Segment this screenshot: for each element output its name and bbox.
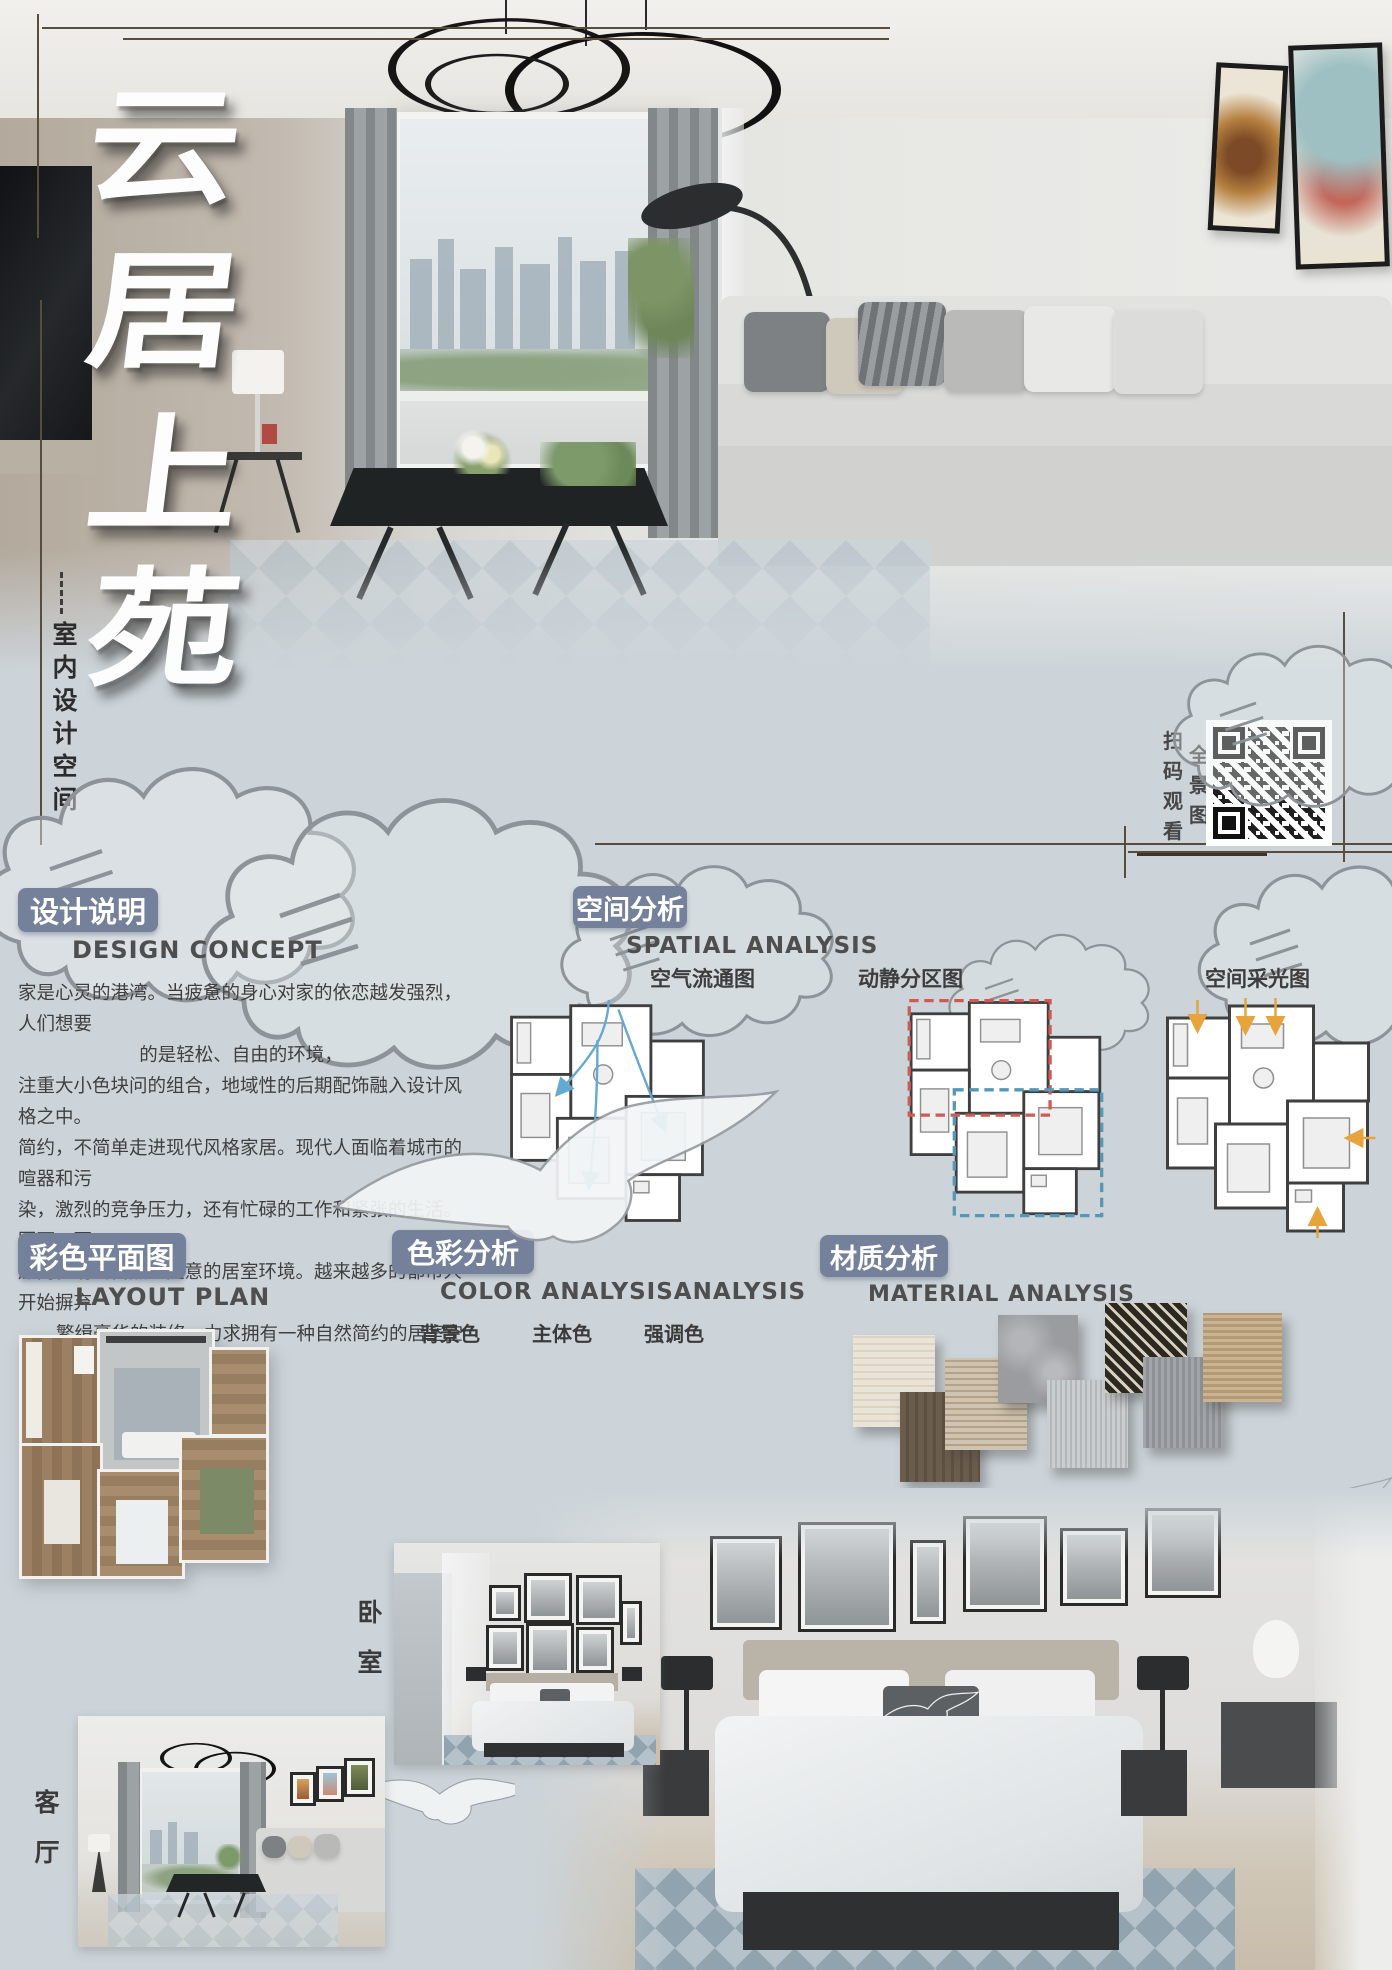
table-lamp-dark	[622, 1667, 642, 1681]
gallery-frame	[620, 1601, 642, 1645]
title-char: 云	[80, 84, 286, 212]
art-frame	[316, 1766, 344, 1802]
plan-bedroom-2	[182, 1438, 266, 1560]
building	[460, 269, 486, 359]
plan-dining	[22, 1446, 100, 1576]
diagram-label-airflow: 空气流通图	[650, 963, 755, 993]
bed-base	[484, 1743, 624, 1757]
swatch-label-accent: 强调色	[644, 1318, 704, 1347]
sofa	[718, 296, 1392, 566]
gallery-frame	[576, 1627, 614, 1673]
layout-plan-heading-en: LAYOUT PLAN	[75, 1283, 270, 1311]
white-lamp	[88, 1834, 110, 1852]
title-char: 苑	[80, 566, 286, 694]
building	[438, 239, 454, 354]
building	[580, 261, 606, 359]
pillow	[288, 1836, 312, 1858]
floor-plan-daylight	[1150, 998, 1385, 1243]
pillow-dark	[744, 312, 830, 392]
living-room-small-photo	[78, 1716, 385, 1947]
kitchen-counter	[26, 1342, 42, 1438]
pillow	[262, 1836, 286, 1858]
nightstand	[1121, 1750, 1187, 1816]
tv-wall	[106, 1336, 206, 1343]
dining-table	[44, 1480, 80, 1544]
pillow	[314, 1834, 340, 1858]
title-char: 居	[80, 248, 286, 376]
pillow-light	[1113, 310, 1203, 394]
green-bed-top-view	[200, 1468, 254, 1534]
coffee-table	[166, 1874, 266, 1892]
abstract-art-frame	[1288, 42, 1390, 269]
tv-console	[0, 440, 96, 474]
material-analysis-heading-en: MATERIAL ANALYSIS	[868, 1282, 1135, 1307]
hanging-plant	[540, 442, 636, 486]
bedroom-label: 卧室	[355, 1588, 385, 1688]
material-analysis-heading: 材质分析	[820, 1235, 948, 1277]
gallery-frame	[524, 1573, 572, 1623]
spatial-analysis-heading-en: SPATIAL ANALYSIS	[626, 933, 878, 959]
curtain-left	[345, 108, 397, 518]
abstract-art-frame	[1208, 62, 1289, 234]
pillow-gray	[944, 310, 1028, 392]
poster: 云 居 上 苑 室内设计空间 扫码观看 全景图 设计说明 DESIGN CONC…	[0, 0, 1392, 1970]
paragraph-line: 家是心灵的港湾。当疲惫的身心对家的依恋越发强烈，人们想要	[18, 978, 464, 1040]
design-concept-heading: 设计说明	[18, 888, 158, 932]
gallery-frame	[489, 1585, 521, 1621]
flower-vase	[452, 430, 512, 474]
geometric-rug	[108, 1894, 338, 1947]
gallery-frame	[576, 1575, 622, 1625]
floor-plan-zoning	[895, 995, 1115, 1225]
building	[410, 259, 432, 354]
art-frame	[344, 1758, 375, 1797]
bed-duvet	[715, 1716, 1143, 1912]
cloud-decoration	[1160, 640, 1392, 820]
color-analysis-heading-en: COLOR ANALYSISANALYSIS	[440, 1279, 806, 1305]
swatch-label-background: 背景色	[420, 1318, 480, 1347]
pillow-striped	[858, 302, 946, 386]
plan-bedroom-1	[100, 1472, 182, 1576]
paragraph-line: 的是轻松、自由的环境，	[18, 1040, 464, 1071]
subtitle-dashed-line	[60, 572, 63, 614]
pillow-light	[1024, 306, 1116, 392]
living-room-label: 客厅	[32, 1778, 62, 1878]
table-lamp-stem	[684, 1690, 689, 1750]
building	[495, 247, 513, 359]
design-concept-heading-en: DESIGN CONCEPT	[72, 936, 323, 964]
building	[558, 237, 572, 359]
chandelier-wire	[645, 0, 647, 30]
building	[520, 264, 550, 359]
bedroom-small-photo	[394, 1543, 660, 1765]
crop-line	[123, 38, 889, 40]
crop-line	[1137, 853, 1267, 856]
bed-top-view	[116, 1500, 168, 1564]
bed-base	[743, 1892, 1119, 1950]
material-burlap	[1203, 1313, 1282, 1402]
plant	[214, 1844, 244, 1870]
table-lamp-dark	[1137, 1656, 1189, 1690]
table-lamp-stem	[1160, 1690, 1165, 1750]
diagram-label-zoning: 动静分区图	[858, 963, 963, 993]
layout-plan-heading: 彩色平面图	[18, 1233, 186, 1279]
tv-screen	[0, 166, 92, 442]
sheer-curtain-right	[1315, 1488, 1392, 1970]
crop-line	[42, 27, 890, 29]
fridge	[74, 1346, 94, 1374]
art-frame	[290, 1772, 316, 1806]
plan-kitchen	[22, 1338, 100, 1446]
gallery-frame	[526, 1623, 574, 1677]
title-char: 上	[80, 412, 286, 540]
curtain-left	[118, 1762, 140, 1912]
diagram-label-daylight: 空间采光图	[1205, 963, 1310, 993]
gallery-frame	[486, 1625, 524, 1671]
table-lamp-dark	[466, 1667, 486, 1681]
material-pinstripe-fabric	[1047, 1380, 1128, 1468]
plan-balcony	[212, 1350, 266, 1434]
table-lamp-dark	[661, 1656, 713, 1690]
building	[168, 1822, 177, 1870]
seagull-sketch	[330, 1078, 780, 1263]
swatch-label-main: 主体色	[532, 1318, 592, 1347]
colored-floor-plan	[20, 1330, 268, 1580]
crop-line	[1124, 826, 1126, 878]
crop-line	[37, 14, 39, 238]
white-vase-lamp	[1253, 1620, 1299, 1678]
spatial-analysis-heading: 空间分析	[573, 886, 687, 928]
